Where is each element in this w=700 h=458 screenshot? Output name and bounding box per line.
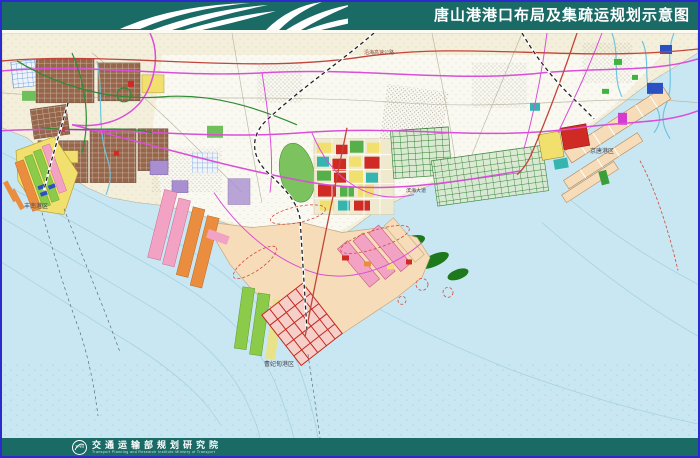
mixed-blocks — [314, 139, 394, 215]
label-binhai-avenue: 滨海大道 — [406, 188, 426, 194]
label-fengnan-port: 丰南港区 — [24, 204, 48, 210]
map-svg — [2, 33, 698, 438]
institute-name-en: Transport Planning and Research Institut… — [92, 450, 222, 454]
label-jingtang-port: 京唐港区 — [590, 149, 614, 155]
poster-frame: 唐山港港口布局及集疏运规划示意图 — [0, 0, 700, 458]
map-area: 丰南港区 曹妃甸港区 京唐港区 沿海高速公路 滨海大道 — [2, 33, 698, 438]
map-title: 唐山港港口布局及集疏运规划示意图 — [434, 2, 698, 30]
label-coastal-expressway: 沿海高速公路 — [364, 50, 394, 56]
institute-name-cn: 交通运输部规划研究院 — [92, 441, 222, 450]
header-bar: 唐山港港口布局及集疏运规划示意图 — [2, 2, 698, 33]
footer-bar: TPRI 交通运输部规划研究院 Transport Planning and R… — [2, 438, 698, 456]
wave-swoosh-logo — [118, 2, 348, 30]
label-caofeidian-port: 曹妃甸港区 — [264, 362, 294, 368]
tpri-logo-icon: TPRI — [72, 440, 87, 455]
